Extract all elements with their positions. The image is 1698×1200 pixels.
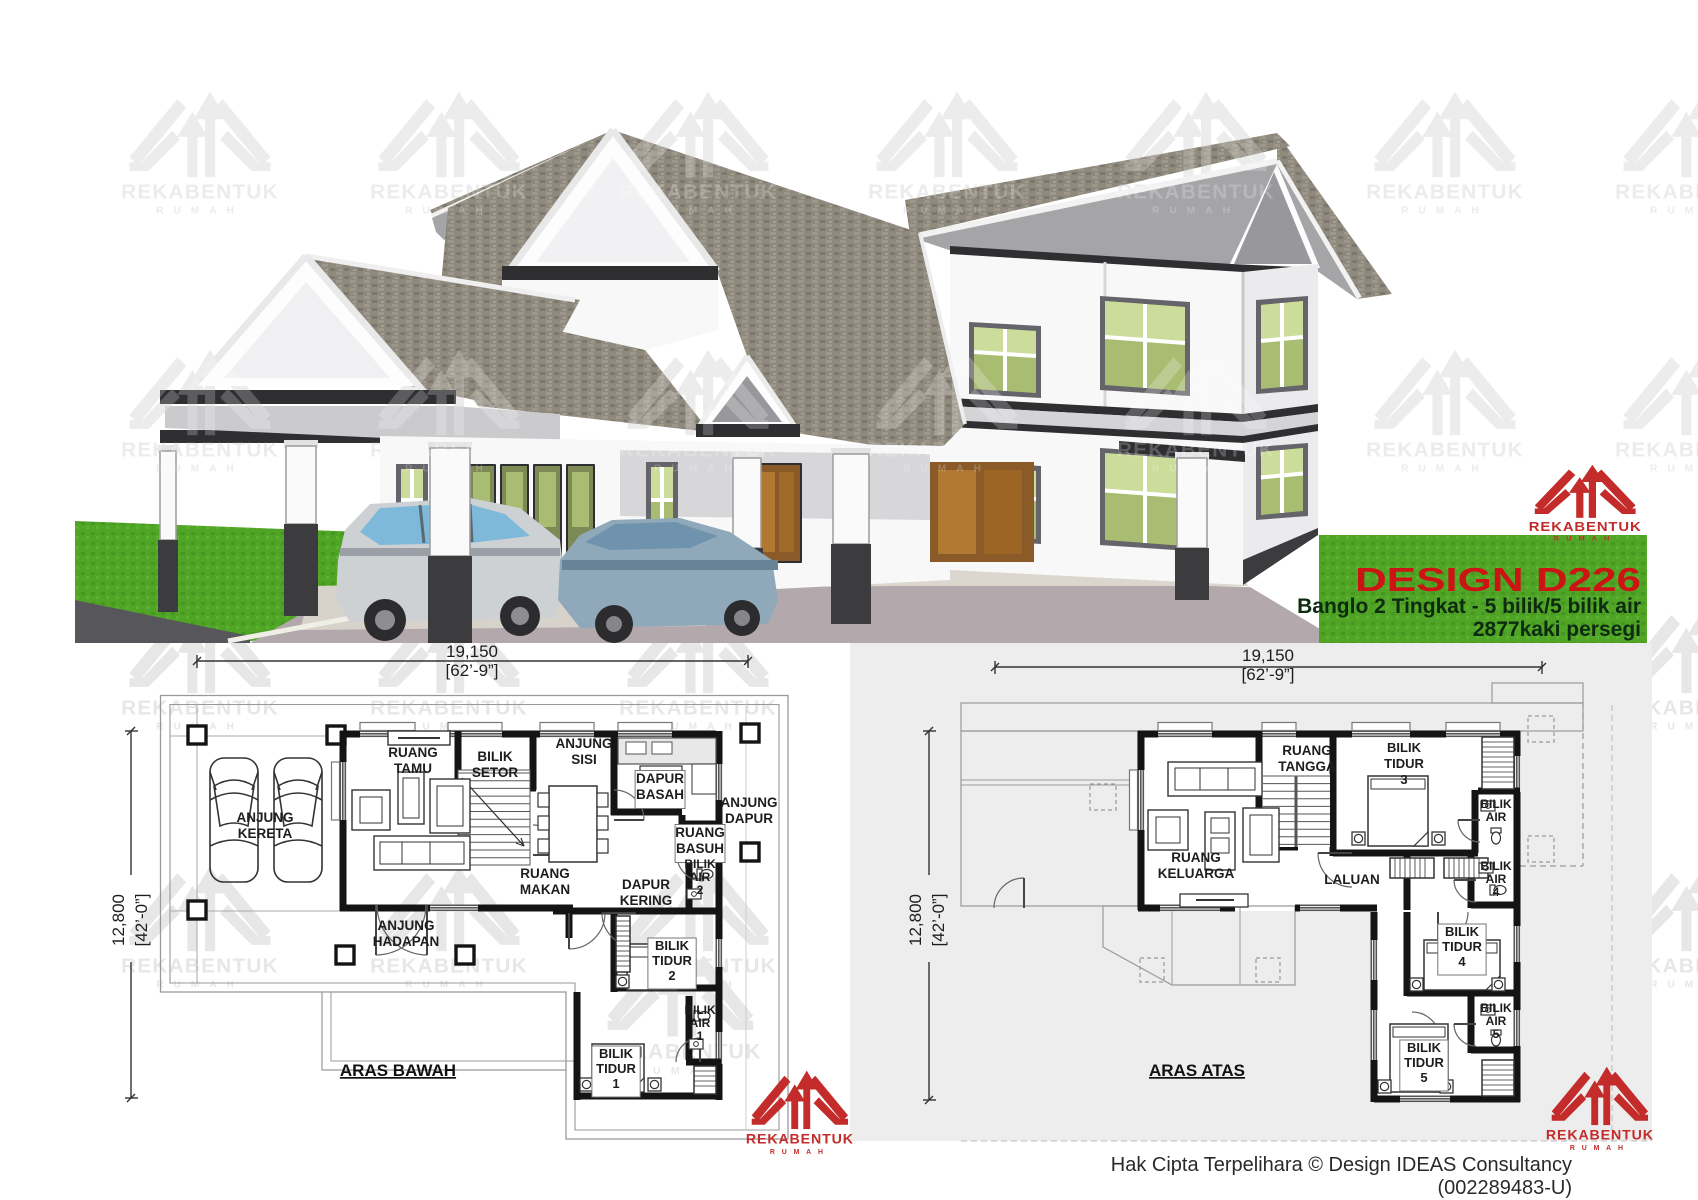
svg-text:5: 5 xyxy=(1420,1070,1427,1085)
svg-text:ANJUNG: ANJUNG xyxy=(236,810,293,825)
svg-text:BILIK: BILIK xyxy=(684,857,716,871)
svg-text:ANJUNG: ANJUNG xyxy=(377,918,434,933)
svg-text:ANJUNG: ANJUNG xyxy=(720,795,777,810)
svg-text:ANJUNG: ANJUNG xyxy=(555,736,612,751)
svg-text:19,150: 19,150 xyxy=(1242,646,1294,665)
svg-text:DAPUR: DAPUR xyxy=(622,877,670,892)
svg-text:[42’-0”]: [42’-0”] xyxy=(132,894,151,947)
svg-text:DESIGN D226: DESIGN D226 xyxy=(1355,561,1641,598)
svg-text:BILIK: BILIK xyxy=(1445,924,1480,939)
svg-text:BASUH: BASUH xyxy=(676,841,724,856)
svg-text:3: 3 xyxy=(1400,772,1407,787)
svg-text:SETOR: SETOR xyxy=(472,765,519,780)
svg-text:TIDUR: TIDUR xyxy=(1442,939,1482,954)
svg-text:RUANG: RUANG xyxy=(1171,850,1221,865)
svg-text:4: 4 xyxy=(1458,954,1466,969)
svg-text:TIDUR: TIDUR xyxy=(596,1061,636,1076)
svg-text:BILIK: BILIK xyxy=(684,1003,716,1017)
svg-text:RUANG: RUANG xyxy=(388,745,438,760)
svg-text:LALUAN: LALUAN xyxy=(1324,872,1380,887)
svg-text:Hak Cipta Terpelihara © Desig: Hak Cipta Terpelihara © Design IDEAS Con… xyxy=(1111,1154,1572,1176)
svg-text:AIR: AIR xyxy=(1486,1014,1507,1028)
svg-text:TIDUR: TIDUR xyxy=(1384,756,1424,771)
svg-text:RUANG: RUANG xyxy=(1282,743,1332,758)
svg-text:AIR: AIR xyxy=(690,1016,711,1030)
svg-text:2: 2 xyxy=(668,968,675,983)
svg-text:KERETA: KERETA xyxy=(238,826,293,841)
svg-text:1: 1 xyxy=(697,1029,704,1043)
svg-text:BILIK: BILIK xyxy=(599,1046,634,1061)
svg-text:BASAH: BASAH xyxy=(636,787,684,802)
svg-text:[42’-0”]: [42’-0”] xyxy=(929,894,948,947)
svg-text:HADAPAN: HADAPAN xyxy=(373,934,440,949)
svg-text:(002289483-U): (002289483-U) xyxy=(1437,1177,1572,1199)
svg-text:TAMU: TAMU xyxy=(394,761,432,776)
svg-text:MAKAN: MAKAN xyxy=(520,882,570,897)
svg-text:2877kaki persegi: 2877kaki persegi xyxy=(1473,618,1641,641)
svg-text:12,800: 12,800 xyxy=(109,894,128,946)
svg-text:ARAS ATAS: ARAS ATAS xyxy=(1149,1061,1245,1080)
svg-text:5: 5 xyxy=(1493,1027,1500,1041)
svg-text:BILIK: BILIK xyxy=(1387,740,1422,755)
svg-text:1: 1 xyxy=(612,1076,619,1091)
svg-text:[62’-9”]: [62’-9”] xyxy=(446,661,499,680)
svg-text:SISI: SISI xyxy=(571,752,597,767)
svg-text:RUANG: RUANG xyxy=(675,825,725,840)
svg-text:BILIK: BILIK xyxy=(1480,859,1512,873)
svg-text:TIDUR: TIDUR xyxy=(1404,1055,1444,1070)
svg-text:BILIK: BILIK xyxy=(477,749,512,764)
svg-text:12,800: 12,800 xyxy=(906,894,925,946)
svg-text:TIDUR: TIDUR xyxy=(652,953,692,968)
svg-text:BILIK: BILIK xyxy=(1480,1001,1512,1015)
svg-text:BILIK: BILIK xyxy=(1407,1040,1442,1055)
svg-text:AIR: AIR xyxy=(1486,810,1507,824)
svg-text:4: 4 xyxy=(1493,885,1500,899)
svg-text:KELUARGA: KELUARGA xyxy=(1158,866,1235,881)
svg-text:19,150: 19,150 xyxy=(446,642,498,661)
svg-text:Banglo 2 Tingkat - 5 bilik/5 b: Banglo 2 Tingkat - 5 bilik/5 bilik air xyxy=(1297,595,1641,618)
svg-text:DAPUR: DAPUR xyxy=(636,771,684,786)
svg-text:KERING: KERING xyxy=(620,893,673,908)
svg-text:AIR: AIR xyxy=(690,870,711,884)
svg-text:TANGGA: TANGGA xyxy=(1278,759,1336,774)
svg-text:2: 2 xyxy=(697,883,704,897)
svg-text:BILIK: BILIK xyxy=(1480,797,1512,811)
svg-text:[62’-9”]: [62’-9”] xyxy=(1242,665,1295,684)
svg-text:ARAS BAWAH: ARAS BAWAH xyxy=(340,1061,456,1080)
svg-text:AIR: AIR xyxy=(1486,872,1507,886)
svg-text:DAPUR: DAPUR xyxy=(725,811,773,826)
svg-text:BILIK: BILIK xyxy=(655,938,690,953)
svg-text:RUANG: RUANG xyxy=(520,866,570,881)
